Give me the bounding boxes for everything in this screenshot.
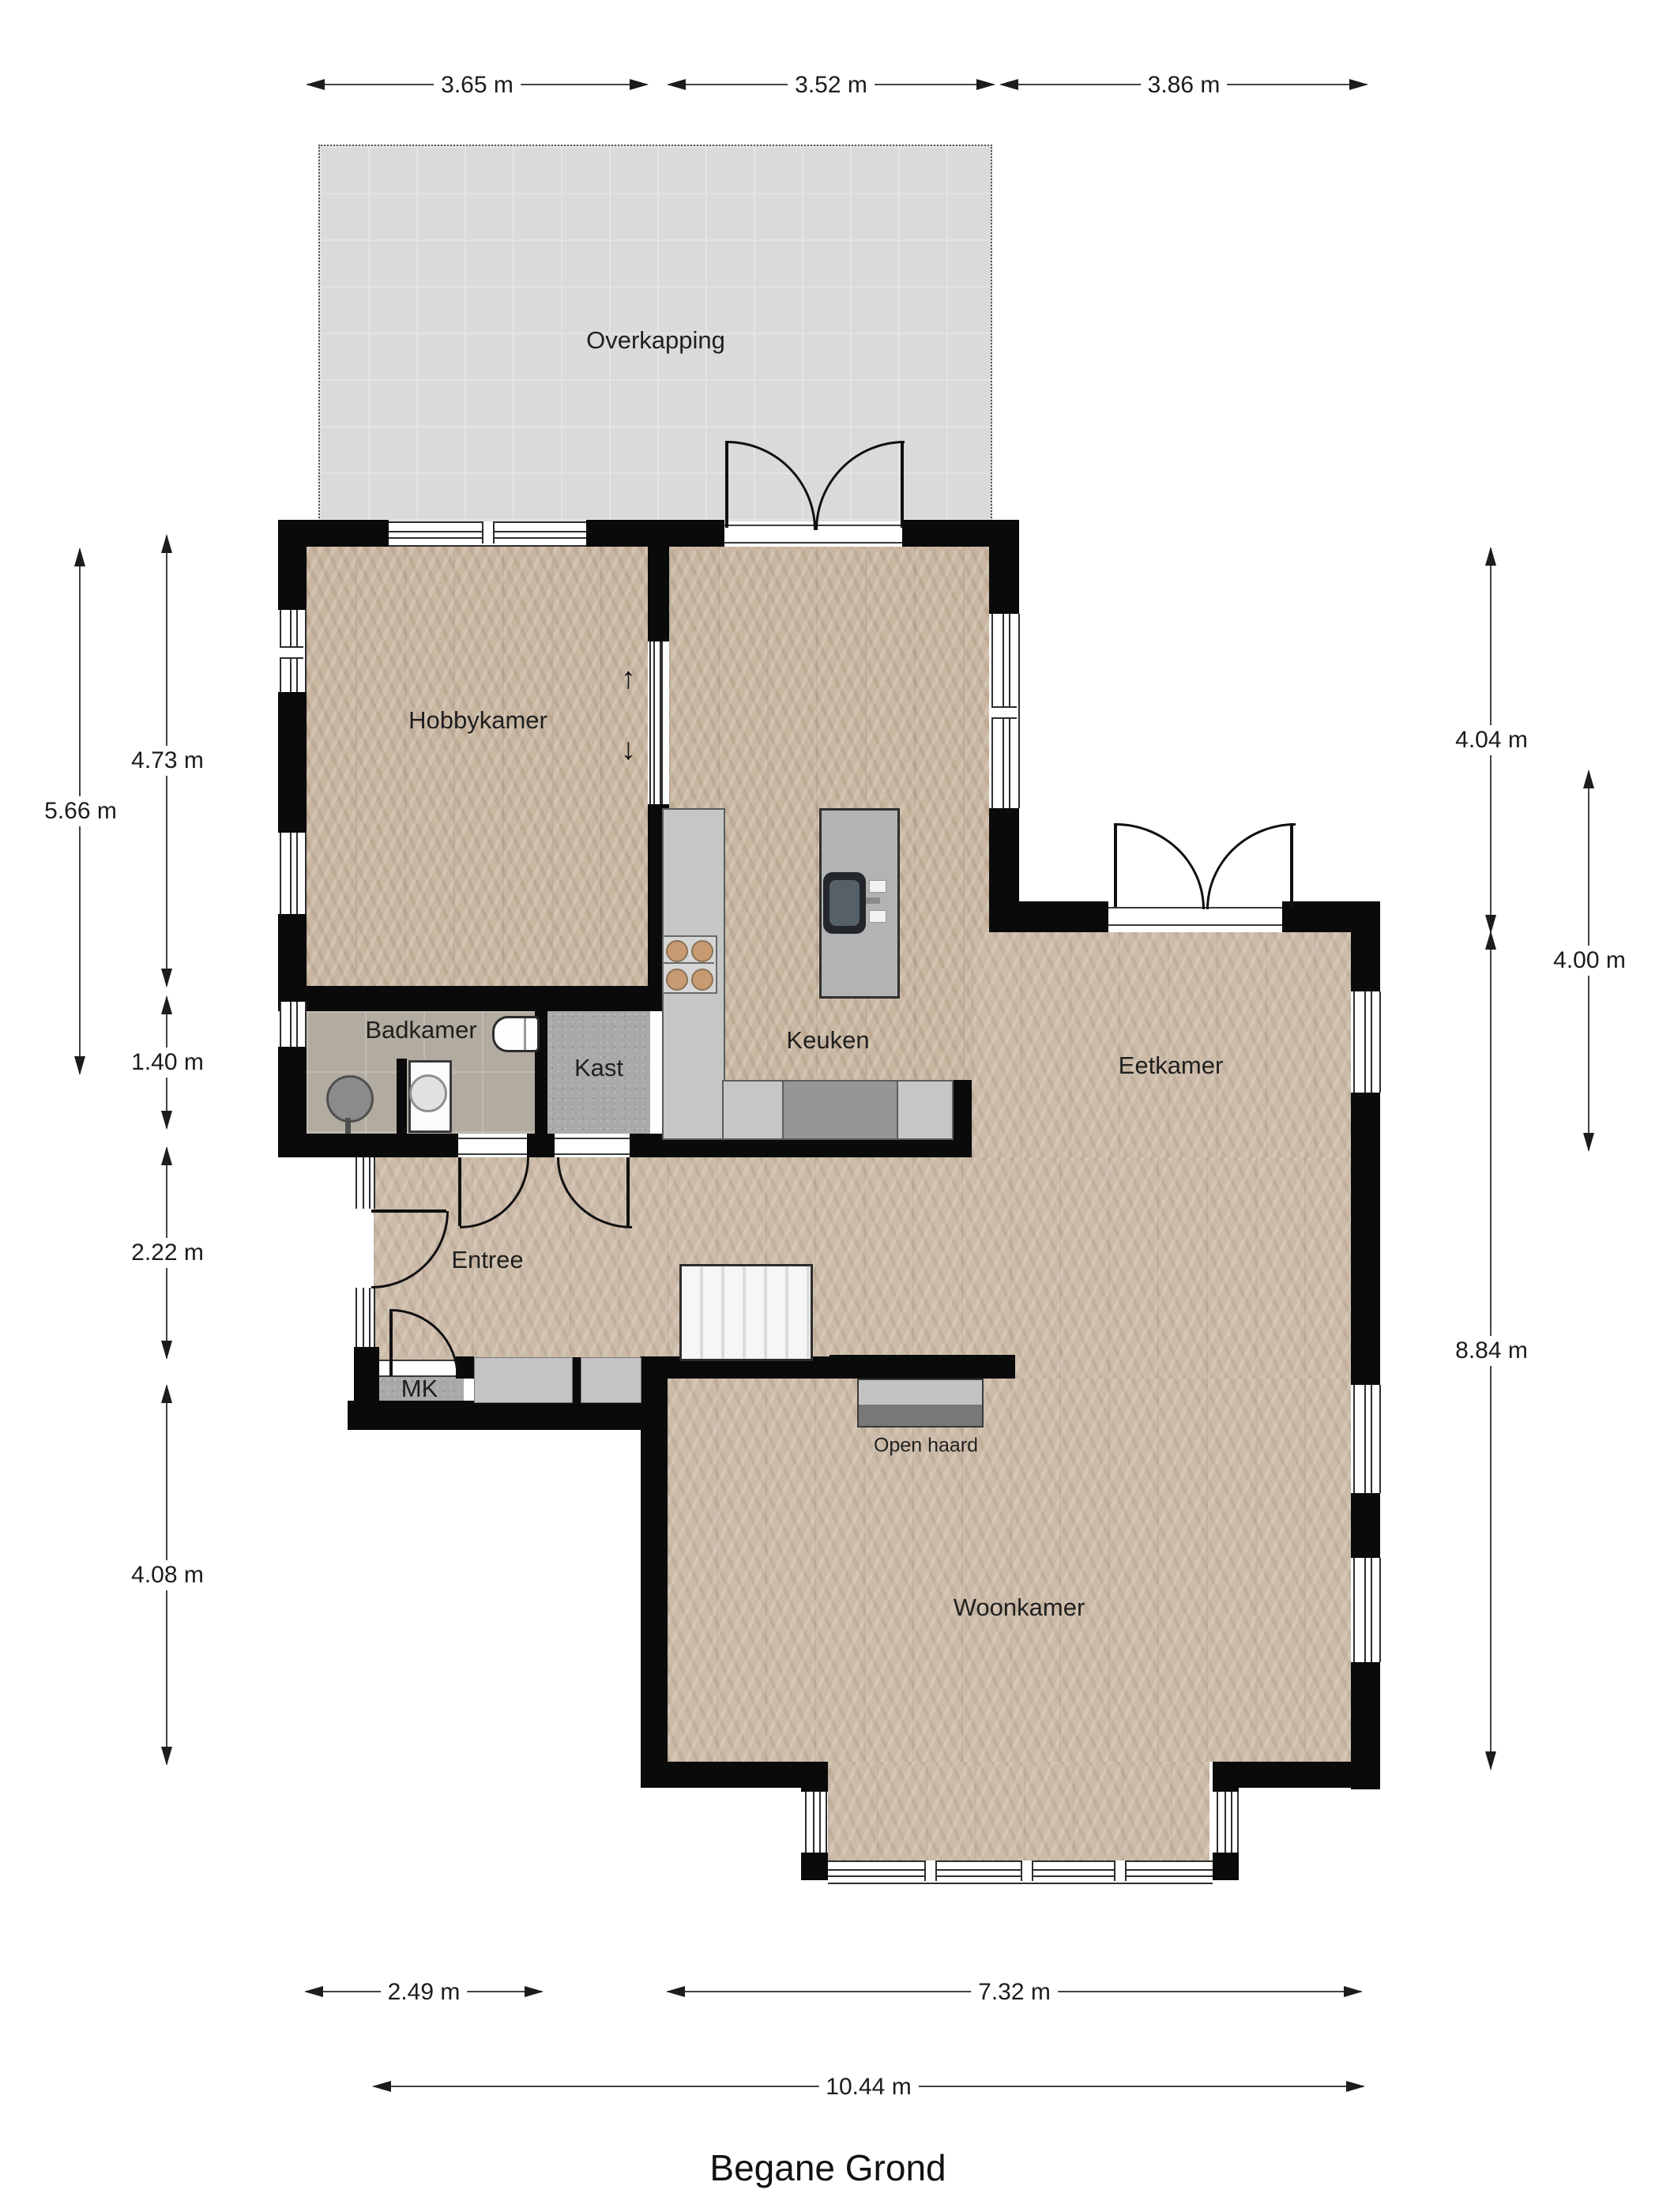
window <box>1353 1558 1381 1662</box>
dim-left-2: 1.40 m <box>166 997 167 1128</box>
wall <box>989 520 1019 614</box>
floor-plan: Overkapping <box>0 0 1659 2212</box>
floor-bay <box>828 1762 1209 1862</box>
faucet-icon <box>866 897 880 904</box>
dim-label: 4.73 m <box>124 746 211 776</box>
fireplace-box <box>857 1405 984 1428</box>
window <box>355 1288 375 1347</box>
window <box>1353 1385 1381 1493</box>
stove-divider <box>664 962 714 964</box>
window-mullion <box>991 706 1017 719</box>
wall-open-haard <box>829 1355 1015 1379</box>
wall <box>278 520 307 610</box>
window <box>280 833 307 914</box>
wall <box>1351 1493 1380 1558</box>
dim-label: 7.32 m <box>971 1977 1058 2007</box>
wall <box>1351 1093 1380 1385</box>
window-mullion <box>1021 1860 1033 1881</box>
wall <box>648 547 669 641</box>
wall <box>1351 901 1380 991</box>
room-label-hobbykamer: Hobbykamer <box>408 706 547 735</box>
toilet <box>492 1016 540 1052</box>
dim-label: 3.86 m <box>1141 70 1228 100</box>
dim-top-1: 3.65 m <box>307 84 647 85</box>
wall <box>641 1379 668 1788</box>
door-leaf <box>901 441 904 528</box>
wall <box>1213 1853 1239 1880</box>
wall <box>278 1047 307 1134</box>
door-leaf <box>1290 823 1293 907</box>
dim-label: 3.65 m <box>434 70 521 100</box>
door-leaf <box>626 1157 630 1226</box>
window <box>805 1792 827 1853</box>
floor-woonkamer <box>668 1379 1351 1762</box>
window <box>1353 991 1381 1093</box>
door-leaf <box>1114 823 1117 907</box>
slide-up-arrow-icon: ↑ <box>621 664 636 694</box>
door-arc-eetkamer-right <box>1206 823 1296 909</box>
door-leaf <box>725 441 728 528</box>
dim-left-total: 5.66 m <box>79 549 81 1074</box>
room-label-mk: MK <box>401 1375 438 1403</box>
dim-bottom-total: 10.44 m <box>374 2086 1364 2087</box>
wall <box>278 1134 458 1157</box>
door-leaf <box>458 1157 461 1226</box>
floor-hobbykamer <box>307 547 648 986</box>
wall <box>641 1762 828 1788</box>
shower-icon <box>326 1075 374 1123</box>
dim-top-3: 3.86 m <box>1001 84 1367 85</box>
dim-label: 4.04 m <box>1448 725 1535 755</box>
dim-right-2: 8.84 m <box>1490 932 1492 1769</box>
dim-left-3: 2.22 m <box>166 1148 167 1358</box>
washing-machine-drum <box>409 1074 447 1112</box>
dim-label: 2.22 m <box>124 1238 211 1268</box>
dim-label: 1.40 m <box>124 1048 211 1078</box>
window <box>1217 1792 1239 1853</box>
dim-label: 4.00 m <box>1546 946 1633 976</box>
wall <box>801 1853 828 1880</box>
door-leaf <box>371 1209 446 1213</box>
shower-stem <box>345 1118 351 1134</box>
door-arc-eetkamer-left <box>1115 823 1205 909</box>
slide-down-arrow-icon: ↓ <box>621 735 636 765</box>
room-label-overkapping: Overkapping <box>586 326 725 355</box>
wall <box>397 1059 407 1134</box>
room-label-eetkamer: Eetkamer <box>1119 1051 1224 1080</box>
dim-left-1: 4.73 m <box>166 536 167 986</box>
page-title: Begane Grond <box>709 2146 946 2189</box>
dim-label: 10.44 m <box>818 2072 918 2102</box>
wall <box>989 901 1108 932</box>
dim-label: 5.66 m <box>37 796 124 826</box>
wall <box>952 1080 972 1134</box>
dim-label: 4.08 m <box>124 1560 211 1590</box>
door-sill <box>1108 907 1282 926</box>
fireplace-hearth <box>857 1379 984 1406</box>
dim-bottom-1: 2.49 m <box>306 1991 542 1992</box>
dim-label: 8.84 m <box>1448 1336 1535 1366</box>
dim-label: 2.49 m <box>381 1977 468 2007</box>
dim-top-2: 3.52 m <box>668 84 994 85</box>
floor-eetkamer <box>972 932 1351 1157</box>
window-mullion <box>1114 1860 1127 1881</box>
room-label-kast: Kast <box>574 1054 623 1082</box>
burner-icon <box>666 969 688 991</box>
burner-icon <box>691 940 713 962</box>
dim-right-1: 4.04 m <box>1490 548 1492 932</box>
door-leaf <box>389 1309 393 1376</box>
room-label-keuken: Keuken <box>786 1026 869 1055</box>
faucet-tab <box>869 880 886 893</box>
room-label-open-haard: Open haard <box>874 1435 978 1458</box>
window-mullion <box>280 646 303 659</box>
dim-label: 3.52 m <box>788 70 875 100</box>
wall <box>586 520 724 547</box>
window-mullion <box>924 1860 937 1881</box>
window <box>280 1002 307 1047</box>
closet <box>581 1357 641 1403</box>
wall <box>278 692 307 833</box>
door-sill <box>458 1138 527 1155</box>
burner-icon <box>666 940 688 962</box>
window-mullion <box>482 521 495 544</box>
room-label-entree: Entree <box>451 1246 523 1274</box>
room-label-woonkamer: Woonkamer <box>954 1593 1085 1622</box>
dim-bottom-2: 7.32 m <box>668 1991 1361 1992</box>
wall <box>527 1134 555 1157</box>
stairs <box>679 1264 813 1361</box>
room-label-badkamer: Badkamer <box>365 1016 476 1044</box>
wall <box>348 1401 668 1430</box>
wall <box>354 1347 379 1401</box>
sliding-door <box>649 641 663 804</box>
closet <box>474 1357 573 1403</box>
burner-icon <box>691 969 713 991</box>
kitchen-counter-appliance <box>782 1080 898 1140</box>
dim-left-4: 4.08 m <box>166 1386 167 1764</box>
sink-basin <box>829 880 860 926</box>
window <box>355 1157 375 1209</box>
faucet-tab <box>869 910 886 923</box>
dim-right-inner: 4.00 m <box>1588 771 1589 1150</box>
door-sill <box>555 1138 630 1155</box>
wall <box>1213 1762 1380 1788</box>
wall <box>278 986 669 1011</box>
